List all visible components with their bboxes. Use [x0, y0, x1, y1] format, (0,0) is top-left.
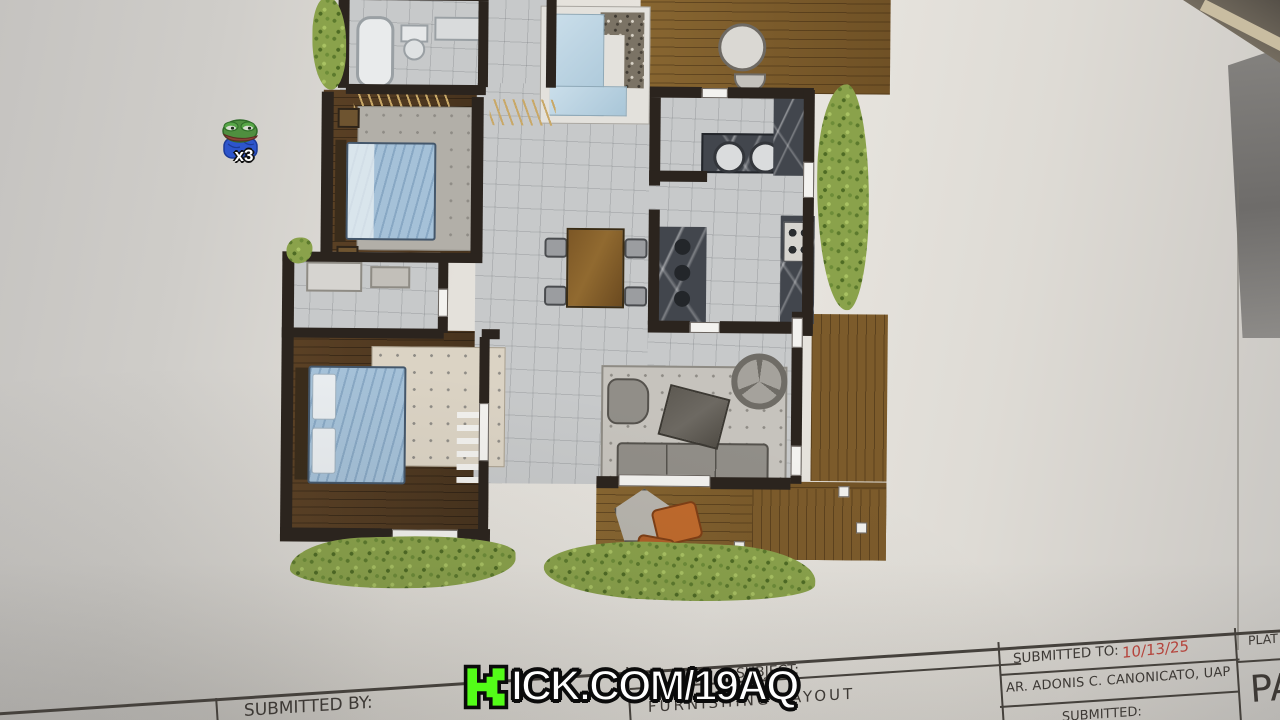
plate-value: PA — [1249, 665, 1280, 711]
plate-row-line — [1238, 658, 1280, 663]
plate-divider — [1234, 628, 1242, 720]
watermark-text: ICK.COM/19AQ — [511, 662, 798, 711]
emote-count: x3 — [226, 146, 262, 166]
partial-bottom-label: SUBMITTED: — [1062, 704, 1142, 720]
stream-frame: SUBMITTED BY: SUBJECT: FURNISHING LAYOUT… — [0, 0, 1280, 720]
title-block: SUBMITTED BY: SUBJECT: FURNISHING LAYOUT… — [0, 0, 1280, 720]
submitted-to-divider — [997, 642, 1004, 720]
kick-logo-icon — [462, 663, 510, 711]
submitted-by-divider — [215, 698, 219, 720]
kick-watermark: ICK.COM/19AQ — [462, 662, 798, 711]
emote-overlay: x3 — [218, 118, 266, 160]
architect-name: AR. ADONIS C. CANONICATO, UAP — [1006, 665, 1231, 697]
plate-label: PLAT — [1248, 631, 1278, 648]
